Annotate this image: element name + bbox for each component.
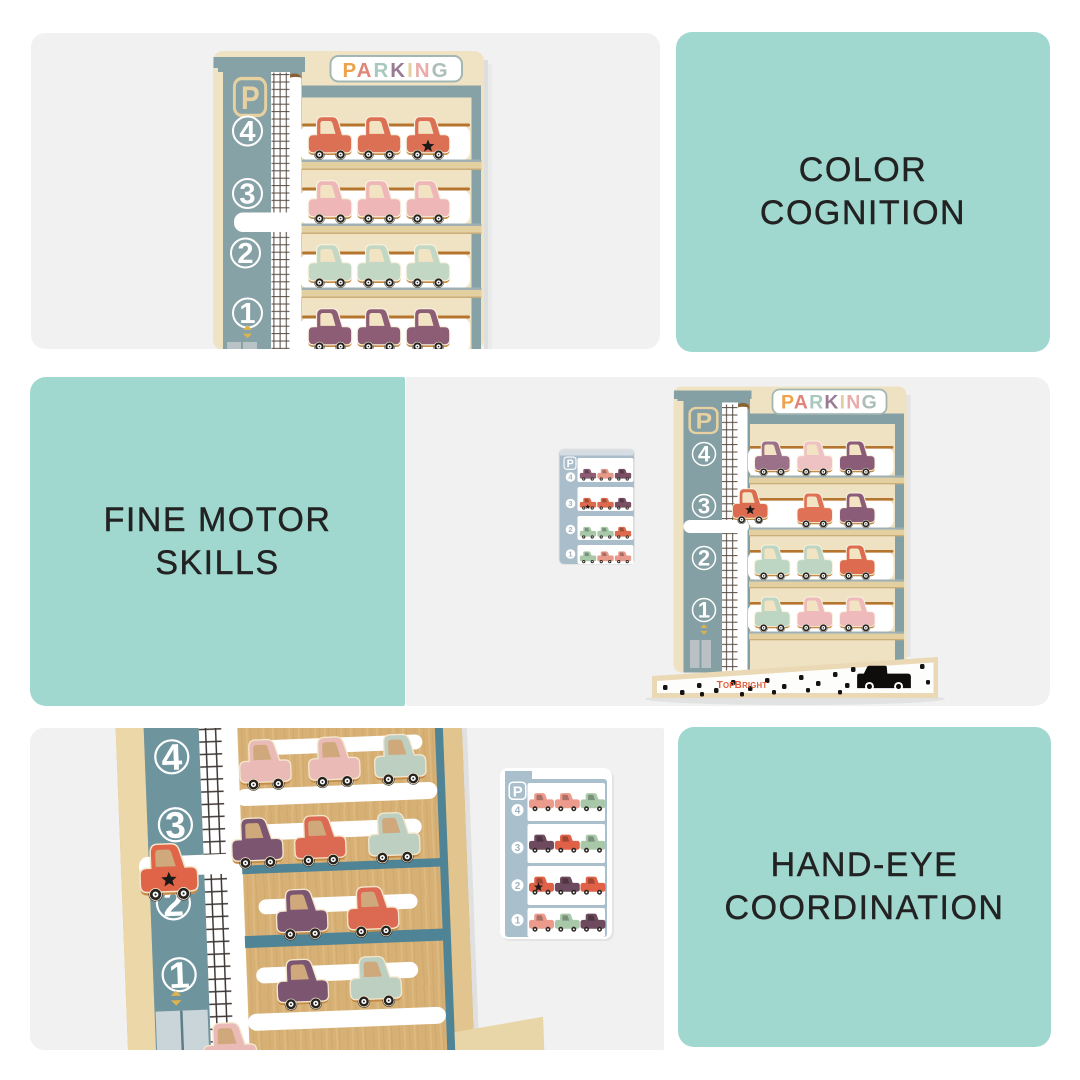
svg-text:4: 4 <box>161 736 184 778</box>
svg-text:3: 3 <box>568 499 572 508</box>
svg-text:2: 2 <box>237 238 253 270</box>
svg-text:2: 2 <box>515 881 521 892</box>
svg-text:4: 4 <box>239 116 255 148</box>
svg-text:1: 1 <box>168 954 190 996</box>
svg-text:PARKING: PARKING <box>781 392 878 414</box>
svg-text:PARKING: PARKING <box>342 59 449 82</box>
svg-text:4: 4 <box>698 442 711 467</box>
svg-text:3: 3 <box>164 804 186 846</box>
svg-text:4: 4 <box>515 806 521 817</box>
svg-text:2: 2 <box>568 525 572 534</box>
svg-text:3: 3 <box>698 494 710 519</box>
svg-text:3: 3 <box>239 179 255 211</box>
svg-text:3: 3 <box>515 843 521 854</box>
svg-text:TOPBRIGHT: TOPBRIGHT <box>717 680 768 691</box>
svg-text:1: 1 <box>515 916 521 927</box>
svg-text:1: 1 <box>568 550 572 559</box>
svg-text:1: 1 <box>698 598 710 623</box>
svg-text:2: 2 <box>698 546 710 571</box>
